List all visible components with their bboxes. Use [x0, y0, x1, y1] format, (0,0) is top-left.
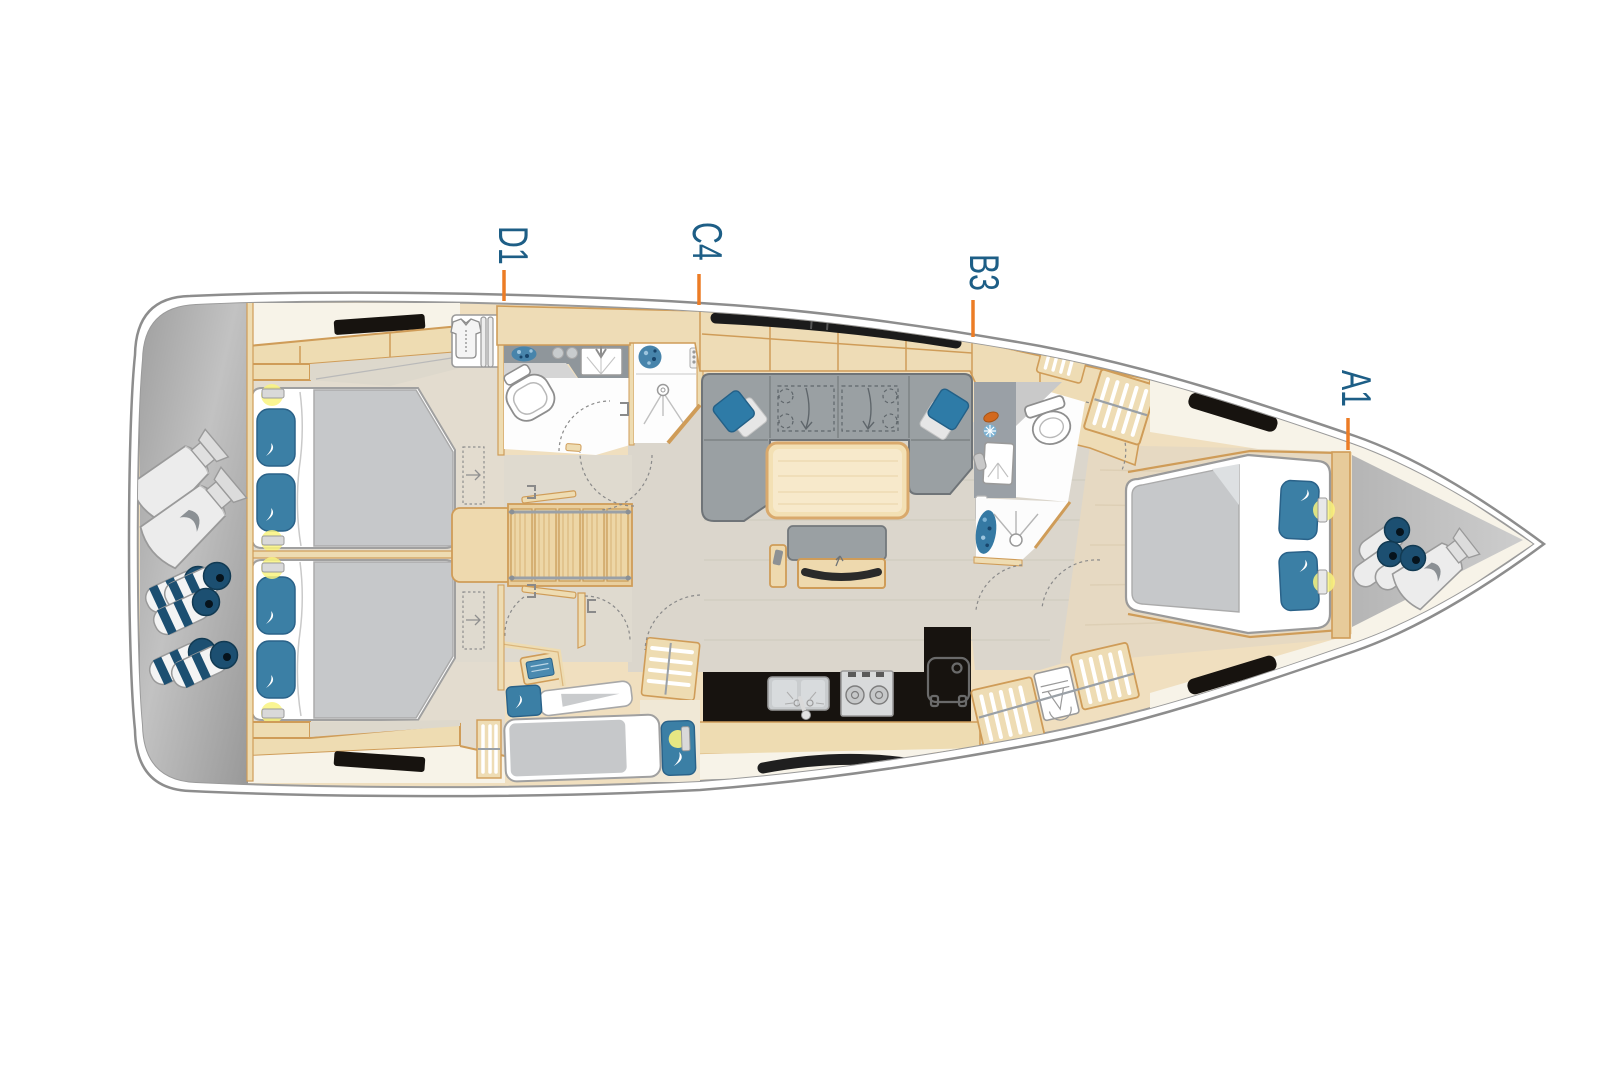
svg-text:B3: B3: [961, 254, 1008, 291]
svg-text:C4: C4: [684, 222, 731, 261]
svg-text:A1: A1: [1333, 370, 1380, 407]
svg-text:D1: D1: [490, 226, 537, 265]
